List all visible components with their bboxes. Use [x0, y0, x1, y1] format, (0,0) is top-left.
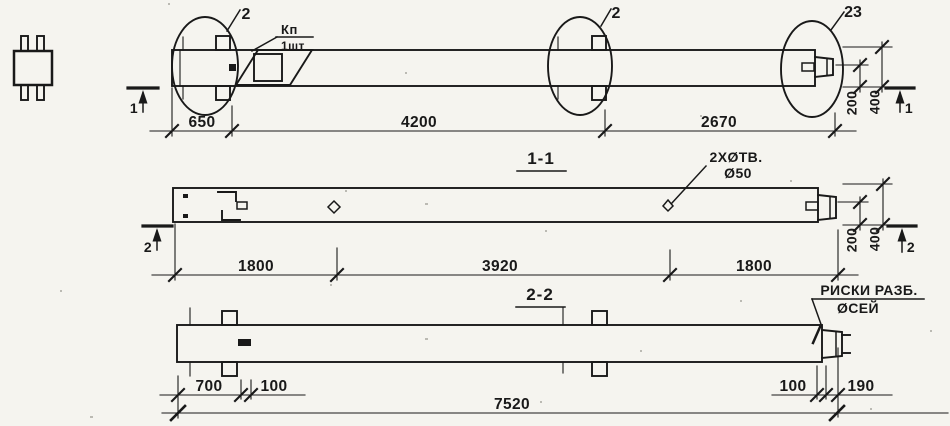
callout-leader-left	[227, 10, 240, 31]
section-cut-2-left-label: 2	[144, 239, 152, 255]
flag-note: Кп 1шт	[252, 22, 313, 53]
section-1-1-left-embeds	[183, 192, 247, 220]
section-cut-1-left: 1	[128, 88, 158, 116]
holes-note-line2: Ø50	[724, 165, 752, 181]
flag-note-leader	[252, 37, 277, 51]
plan-mid-embeds	[558, 36, 606, 100]
section-cut-1-right: 1	[886, 88, 914, 116]
end-cross-section-view	[14, 36, 52, 100]
section-1-1-beam-body	[173, 188, 818, 222]
section-1-1-dim-seg3-label: 1800	[736, 258, 772, 275]
section-2-2-right-dims: 100 190	[772, 348, 892, 417]
plan-view: Кп 1шт 2 2 23 1	[128, 4, 914, 137]
holes-note: 2ХØТВ. Ø50	[672, 149, 762, 203]
plan-dim-seg2-label: 4200	[401, 114, 437, 131]
plan-dim-outer-label: 400	[867, 90, 883, 115]
callout-leader-right	[831, 12, 844, 30]
section-2-2-left-dims: 700 100	[160, 376, 305, 401]
detail-callout-left-label: 2	[242, 6, 251, 23]
section-1-1-view: 1-1 2ХØТВ. Ø50 2	[143, 149, 916, 281]
section-2-2-beam-body	[177, 325, 822, 362]
cross-section-body	[14, 51, 52, 85]
hole-marker	[663, 200, 673, 211]
axes-note-line1: РИСКИ РАЗБ.	[820, 282, 917, 298]
plan-dim-chain: 650 4200 2670	[150, 88, 856, 137]
callout-leader-mid	[601, 9, 611, 26]
section-2-2-dim-seg1-label: 700	[195, 378, 222, 395]
section-2-2-dim-seg2-label: 100	[260, 378, 287, 395]
section-2-2-dim-seg3-label: 100	[779, 378, 806, 395]
section-1-1-end-connector	[806, 195, 836, 220]
section-1-1-dim-inner-label: 200	[844, 228, 860, 253]
flag-note-bottom-label: 1шт	[281, 39, 305, 53]
cross-section-lug-bottom-left	[21, 85, 28, 100]
plan-end-connector	[802, 57, 833, 77]
section-2-2-end-connector	[813, 327, 850, 358]
detail-circle-left	[172, 17, 238, 115]
flag-note-top-label: Кп	[281, 22, 298, 37]
plan-left-embeds	[183, 36, 236, 100]
section-2-2-left-embeds	[190, 308, 251, 376]
section-cut-2-right: 2	[888, 226, 916, 255]
cross-section-lug-top-left	[21, 36, 28, 51]
holes-note-leader	[672, 166, 706, 203]
overall-dim: 7520	[162, 396, 948, 420]
axes-note-line2: ØСЕЙ	[837, 299, 879, 316]
axis-mark-scribe	[813, 327, 820, 343]
section-1-1-vertical-dims: 200 400	[838, 178, 892, 252]
section-1-1-dim-outer-label: 400	[867, 227, 883, 252]
axes-note: РИСКИ РАЗБ. ØСЕЙ	[812, 282, 924, 327]
section-2-2-mid-embeds	[563, 308, 607, 376]
paper-speckles	[60, 3, 932, 418]
engineering-drawing: Кп 1шт 2 2 23 1	[0, 0, 950, 426]
section-cut-2-right-label: 2	[907, 239, 915, 255]
section-cut-2-left: 2	[143, 226, 172, 255]
cross-section-lug-top-right	[37, 36, 44, 51]
plan-dim-inner-label: 200	[844, 91, 860, 116]
overall-dim-label: 7520	[494, 396, 530, 413]
section-2-2-dim-seg4-label: 190	[847, 378, 874, 395]
detail-callout-right-label: 23	[844, 4, 862, 21]
section-2-2-view: 2-2 РИСКИ РАЗБ. ØСЕЙ	[160, 282, 948, 420]
detail-circle-mid	[548, 17, 612, 115]
cross-section-lug-bottom-right	[37, 85, 44, 100]
section-2-2-title: 2-2	[526, 285, 554, 304]
section-cut-1-left-label: 1	[130, 100, 138, 116]
section-cut-1-right-label: 1	[905, 100, 913, 116]
section-1-1-title: 1-1	[527, 149, 555, 168]
plan-vertical-dims: 200 400	[836, 41, 892, 115]
plan-dim-seg3-label: 2670	[701, 114, 737, 131]
section-1-1-dim-chain: 1800 3920 1800	[152, 224, 858, 281]
section-1-1-dim-seg2-label: 3920	[482, 258, 518, 275]
plan-console-plate	[236, 50, 312, 85]
plan-dim-seg1-label: 650	[188, 114, 215, 131]
holes-note-line1: 2ХØТВ.	[710, 149, 763, 165]
axes-note-leader	[812, 299, 822, 327]
drawing-sheet: Кп 1шт 2 2 23 1	[0, 0, 950, 426]
section-1-1-dim-seg1-label: 1800	[238, 258, 274, 275]
detail-callout-mid-label: 2	[612, 5, 621, 22]
section-1-1-center-marker	[328, 201, 340, 213]
